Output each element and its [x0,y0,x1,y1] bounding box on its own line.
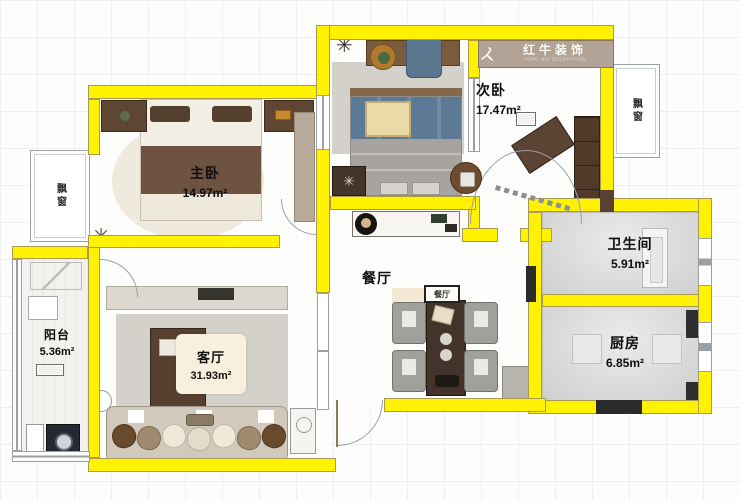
sofa-cutout [128,410,144,423]
floor-plan-canvas: ✳ ✳ ✳ 餐厅 [0,0,740,500]
label-dining: 餐厅 [362,268,422,288]
wall-master-top [88,85,328,99]
dining-chair [464,350,498,392]
dining-tray [431,305,454,325]
second-desk-chair [406,36,442,78]
wall-master-left [88,99,100,155]
sliding-door-panel [317,293,329,351]
window-second-left [316,95,330,150]
area-badge-icon [36,364,64,376]
dining-name: 餐厅 [362,268,422,288]
sofa-cutout [258,410,274,423]
bay-window-left: 飘窗 [30,150,90,242]
kitchen-door-mat [596,400,642,414]
side-table-lamp [296,417,312,433]
label-living-card: 客厅 31.93m² [176,334,246,394]
bathroom-area: 5.91m² [575,257,685,271]
dining-chair [464,302,498,344]
second-name: 次卧 [476,80,566,100]
second-bed-quilt [365,101,411,137]
wall-balcony-top [12,246,88,259]
sideboard-bowl-inner [361,218,371,228]
bay-window-right-label: 飘窗 [629,98,644,124]
window-bathroom-right [698,238,712,286]
plant-icon: ✳ [343,173,355,189]
dining-plate3 [435,375,459,387]
wall-foyer-bottom-a [462,228,498,242]
second-bench-right [412,182,440,195]
wall-corner-wood [600,190,614,212]
balcony-name: 阳台 [28,326,86,343]
dining-plate1 [440,333,452,345]
sideboard [352,211,460,237]
brand-tagline: HONG NIU DECORATION [524,57,587,61]
second-bed-blanket-folds2 [351,169,461,171]
label-bathroom: 卫生间 5.91m² [575,234,685,271]
bathroom-door [526,266,536,302]
dining-chair [392,302,426,344]
wall-master-bottom [88,235,280,248]
round-table-item [460,172,475,187]
tv [198,288,234,300]
washer-door [55,433,73,451]
wall-second-top [316,25,614,40]
wall-living-left [88,246,100,458]
dining-table [426,300,466,396]
foyer-round-table [450,162,482,194]
balcony-shelf [28,296,58,320]
window-balcony-left [12,259,22,451]
second-headboard [350,88,462,96]
wall-bathkitchen-right [698,198,712,414]
nightstand-decor [120,111,130,121]
sofa-side-table [290,408,316,454]
wall-bathkitchen-left [528,212,542,414]
kitchen-name: 厨房 [570,333,680,353]
bathroom-name: 卫生间 [575,234,685,254]
living-area: 31.93m² [191,370,232,382]
nightstand-lamp [275,110,291,120]
kitchen-area: 6.85m² [570,356,680,370]
sideboard-box-dark [445,224,457,232]
dining-wall-sign: 餐厅 [424,285,460,303]
sideboard-box-green [431,214,447,223]
bay-window-left-label: 飘窗 [53,183,68,209]
area-badge-icon [516,112,536,126]
bay-window-right: 飘窗 [612,64,660,158]
nightstand-left [101,100,147,132]
logo-mark-icon [480,46,494,62]
wall-bath-kitchen-divider [542,294,712,307]
second-corner-cabinet: ✳ [332,166,366,196]
dining-south-door-leaf [336,400,338,447]
label-master: 主卧 14.97m² [150,163,260,200]
wall-second-bottom [330,196,476,210]
brand-logo: 红牛装饰 HONG NIU DECORATION [478,40,614,68]
living-name: 客厅 [197,347,225,366]
wall-dining-bottom [384,398,546,412]
second-bed [350,96,462,196]
window-kitchen-right [698,322,712,372]
master-pillow-right [212,106,252,122]
sofa-center-item [186,414,214,426]
basket-plant [378,52,390,64]
sideboard-bowl [355,213,377,235]
second-bed-blanket-folds [351,153,461,155]
wall-shared-vertical [316,25,330,293]
label-balcony: 阳台 5.36m² [28,326,86,358]
second-bench-left [380,182,408,195]
balcony-area: 5.36m² [28,346,86,358]
wall-living-bottom [88,458,336,472]
window-balcony-bottom [12,451,90,462]
dining-south-door-arc [337,400,383,446]
master-name: 主卧 [150,163,260,183]
dining-chair [392,350,426,392]
label-kitchen: 厨房 6.85m² [570,333,680,370]
sliding-door-panel [317,351,329,410]
brand-name: 红牛装饰 [523,44,587,56]
drying-rack [30,262,82,290]
master-area: 14.97m² [150,186,260,200]
dining-sign-text: 餐厅 [434,289,450,300]
master-pillow-left [150,106,190,122]
second-basket [370,44,396,70]
dining-plate2 [440,349,452,361]
